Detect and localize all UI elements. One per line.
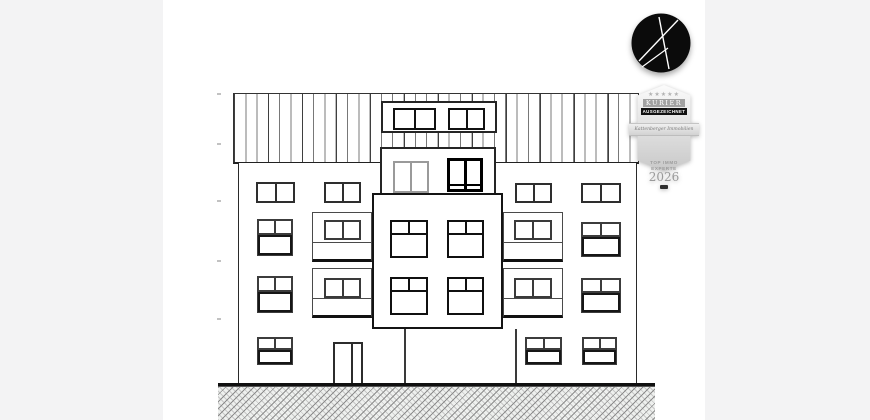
window [581,222,621,257]
balcony-railing [503,242,563,262]
window [447,220,484,258]
level-tick [217,143,221,145]
window [514,220,552,240]
window [514,278,552,298]
window [390,220,428,258]
balcony-railing [312,298,372,318]
elevation-drawing [0,0,870,420]
logo-k-circle-icon [630,12,692,76]
badge-stars: ★★★★★ [648,92,680,98]
window [515,183,552,203]
level-tick [217,93,221,95]
badge-footer-mark [660,185,668,189]
level-tick [217,318,221,320]
window [525,337,562,365]
level-tick [217,260,221,262]
window [448,108,485,130]
balcony-railing [503,298,563,318]
balcony-railing [312,242,372,262]
window [582,337,617,365]
window [257,276,293,313]
window [256,182,295,203]
company-logo [630,12,692,76]
window [324,182,361,203]
badge-year: 2026 [649,171,680,184]
window [581,278,621,313]
window [324,220,361,240]
level-tick [217,200,221,202]
badge-award-label: AUSGEZEICHNET [641,108,688,115]
award-badge: Kattenberger Immobilien ★★★★★ KURIER AUS… [629,85,699,171]
badge-masthead: KURIER [643,99,685,107]
window [257,219,293,256]
window [390,277,428,315]
ground-hatch [218,386,655,420]
window [324,278,361,298]
entrance-door [333,342,363,384]
screenshot-stage: Kattenberger Immobilien ★★★★★ KURIER AUS… [0,0,870,420]
window [447,277,484,315]
window [447,158,483,192]
bay-base-wall [404,329,406,384]
bay-base-wall [515,329,517,384]
window [393,108,436,130]
badge-content: ★★★★★ KURIER AUSGEZEICHNET TOP IMMO EXPE… [629,85,699,189]
badge-category-line1: TOP IMMO [650,160,678,166]
window [257,337,293,365]
window [581,183,621,203]
window [393,161,429,193]
